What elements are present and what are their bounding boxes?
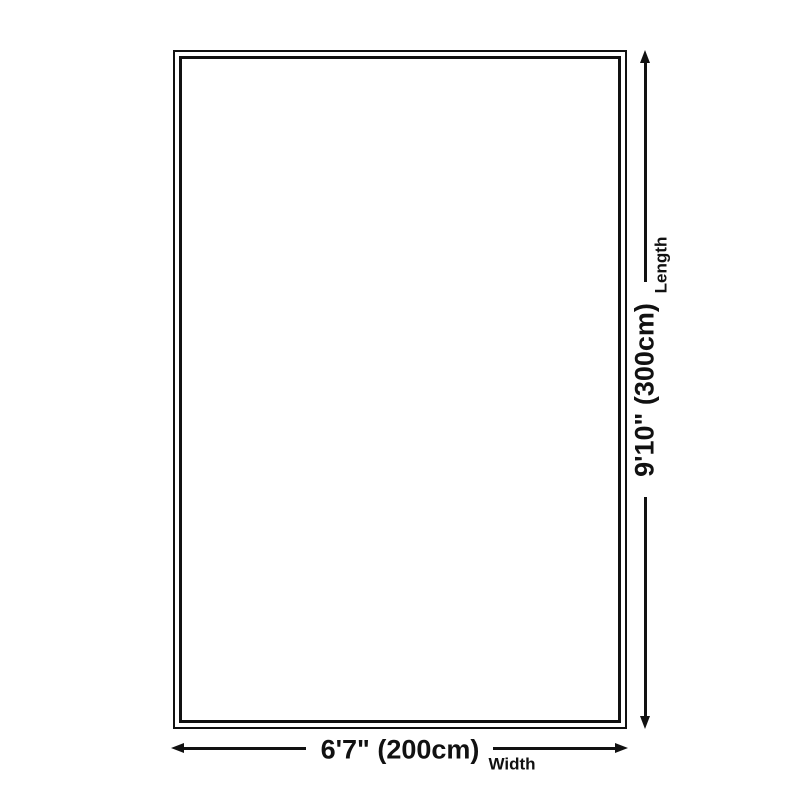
up-arrowhead-icon — [640, 50, 650, 63]
left-arrowhead-icon — [171, 743, 184, 753]
length-dimension-line-bottom — [644, 497, 647, 719]
width-dimension-line-right — [493, 747, 618, 750]
down-arrowhead-icon — [640, 716, 650, 729]
rug-outline — [173, 50, 627, 729]
rug-size-diagram: 9'10" (300cm) Length 6'7" (200cm) Width — [0, 0, 800, 800]
length-dimension-line-top — [644, 60, 647, 282]
length-label: Length — [653, 237, 670, 294]
rug-outline-inner — [179, 56, 621, 723]
width-value: 6'7" (200cm) — [321, 737, 480, 764]
width-label: Width — [488, 756, 535, 773]
length-value: 9'10" (300cm) — [632, 303, 659, 477]
width-dimension-line-left — [181, 747, 306, 750]
right-arrowhead-icon — [615, 743, 628, 753]
